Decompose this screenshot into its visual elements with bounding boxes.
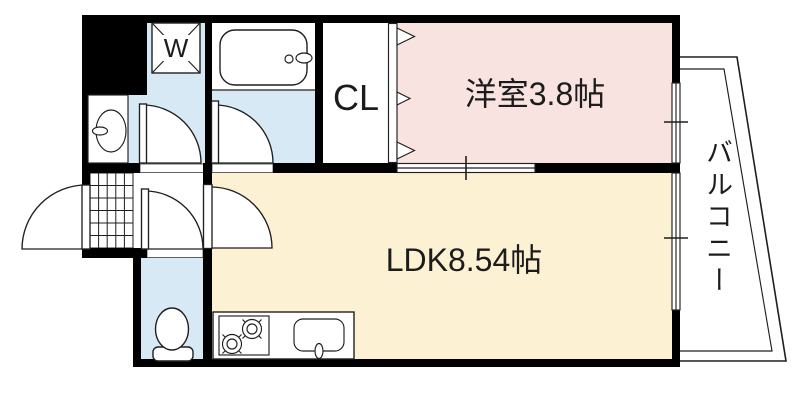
label-balcony: バルコニー [696, 138, 730, 298]
pipe-space [82, 15, 147, 95]
label-western-room: 洋室3.8帖 [425, 78, 645, 110]
washing-machine-letter: W [162, 35, 191, 61]
toilet-door-swing [142, 189, 204, 249]
label-closet: CL [321, 80, 391, 116]
entrance-tile-grid [90, 173, 133, 248]
gas-stove-icon [219, 316, 269, 355]
washbasin-icon [88, 95, 128, 163]
toilet-doorway [147, 249, 203, 258]
floor-plan-drawing [0, 0, 800, 401]
bathtub-icon [220, 30, 312, 85]
label-ldk: LDK8.54帖 [234, 244, 694, 276]
bathroom-doorway [212, 164, 273, 173]
entrance-door-swing [22, 185, 90, 249]
floor-plan: W CL 洋室3.8帖 LDK8.54帖 バルコニー [0, 0, 800, 401]
washroom-doorway [140, 164, 205, 173]
label-washing-machine: W [152, 23, 200, 73]
